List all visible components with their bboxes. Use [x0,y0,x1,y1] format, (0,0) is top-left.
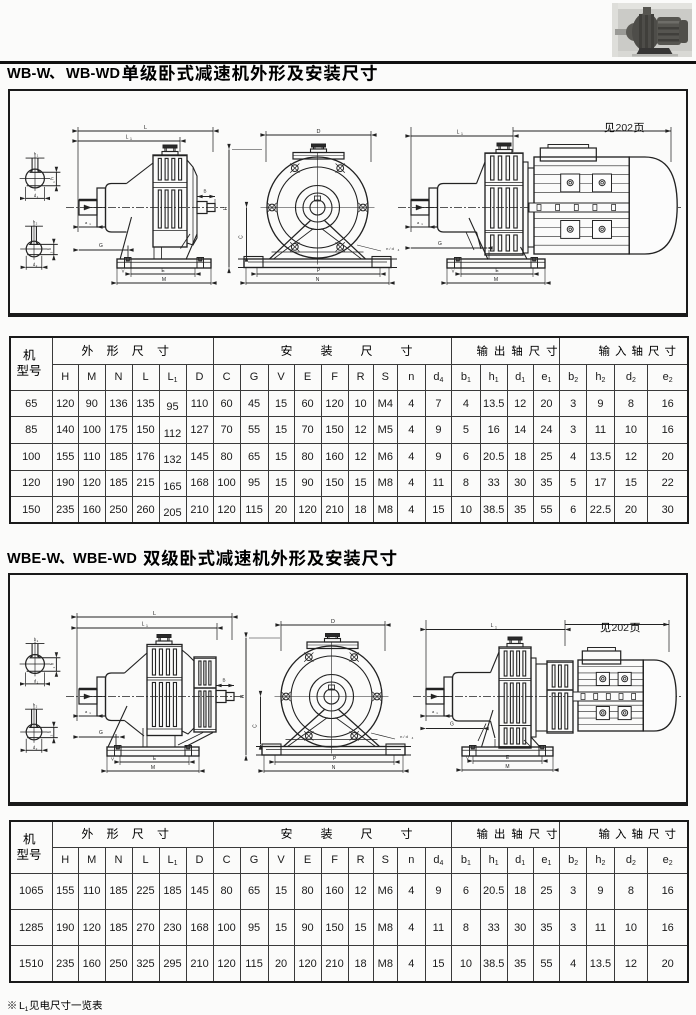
svg-text:4: 4 [412,736,414,740]
svg-text:1: 1 [52,666,56,668]
svg-text:1: 1 [461,132,463,136]
svg-text:L: L [491,623,494,629]
svg-text:2: 2 [36,705,38,709]
svg-text:B: B [222,678,225,683]
svg-text:N: N [332,765,336,771]
svg-text:202: 202 [612,622,630,634]
svg-text:H: H [240,694,246,698]
svg-text:2: 2 [49,251,53,253]
svg-text:G: G [438,241,442,247]
svg-text:M: M [151,765,155,771]
svg-text:G: G [99,243,103,249]
svg-text:N: N [316,277,320,283]
svg-text:2: 2 [36,222,38,226]
svg-text:P: P [317,268,321,274]
svg-text:2: 2 [49,734,53,736]
svg-text:P: P [333,756,337,762]
svg-text:1: 1 [89,222,91,226]
svg-text:E: E [153,756,157,762]
svg-text:M: M [505,764,509,770]
svg-text:G: G [450,722,454,728]
svg-text:n / d: n / d [386,246,394,251]
svg-text:a: a [417,221,420,225]
svg-text:1: 1 [146,624,148,628]
svg-text:1: 1 [495,626,497,630]
svg-text:D: D [317,129,321,135]
svg-text:1: 1 [89,711,91,715]
svg-text:H: H [223,206,229,210]
svg-text:L: L [142,622,145,628]
svg-text:C: C [239,235,245,239]
svg-text:V: V [122,269,125,274]
svg-text:1: 1 [436,711,438,715]
svg-text:WBE-W: WBE-W [7,551,60,567]
svg-text:L: L [457,130,460,136]
svg-text:4: 4 [398,248,400,252]
svg-text:G: G [99,730,103,736]
svg-text:1: 1 [37,639,39,643]
svg-text:M: M [162,277,166,283]
svg-text:1: 1 [25,1006,29,1013]
svg-text:D: D [331,619,335,625]
svg-text:L: L [153,611,156,617]
svg-text:1: 1 [37,154,39,158]
svg-text:n / d: n / d [400,734,408,739]
svg-text:h: h [47,247,52,250]
svg-text:M: M [494,277,498,283]
svg-text:a: a [432,710,435,714]
svg-text:202: 202 [616,122,634,134]
svg-text:WBE-WD: WBE-WD [73,551,137,567]
svg-text:B: B [203,189,206,194]
svg-text:E: E [495,268,499,274]
svg-text:1: 1 [130,137,132,141]
svg-text:C: C [253,724,259,728]
svg-text:WB-WD: WB-WD [66,66,120,82]
svg-text:h: h [49,662,54,665]
svg-text:L: L [126,135,129,141]
svg-text:1: 1 [421,222,423,226]
svg-text:h: h [49,177,54,180]
svg-text:1: 1 [52,181,56,183]
svg-text:a: a [85,710,88,714]
svg-text:h: h [47,730,52,733]
svg-text:a: a [85,221,88,225]
svg-text:V: V [111,757,114,762]
svg-text:V: V [452,269,455,274]
svg-text:V: V [466,756,469,761]
svg-text:E: E [161,268,165,274]
svg-text:L: L [144,125,147,131]
svg-text:WB-W: WB-W [7,66,51,82]
